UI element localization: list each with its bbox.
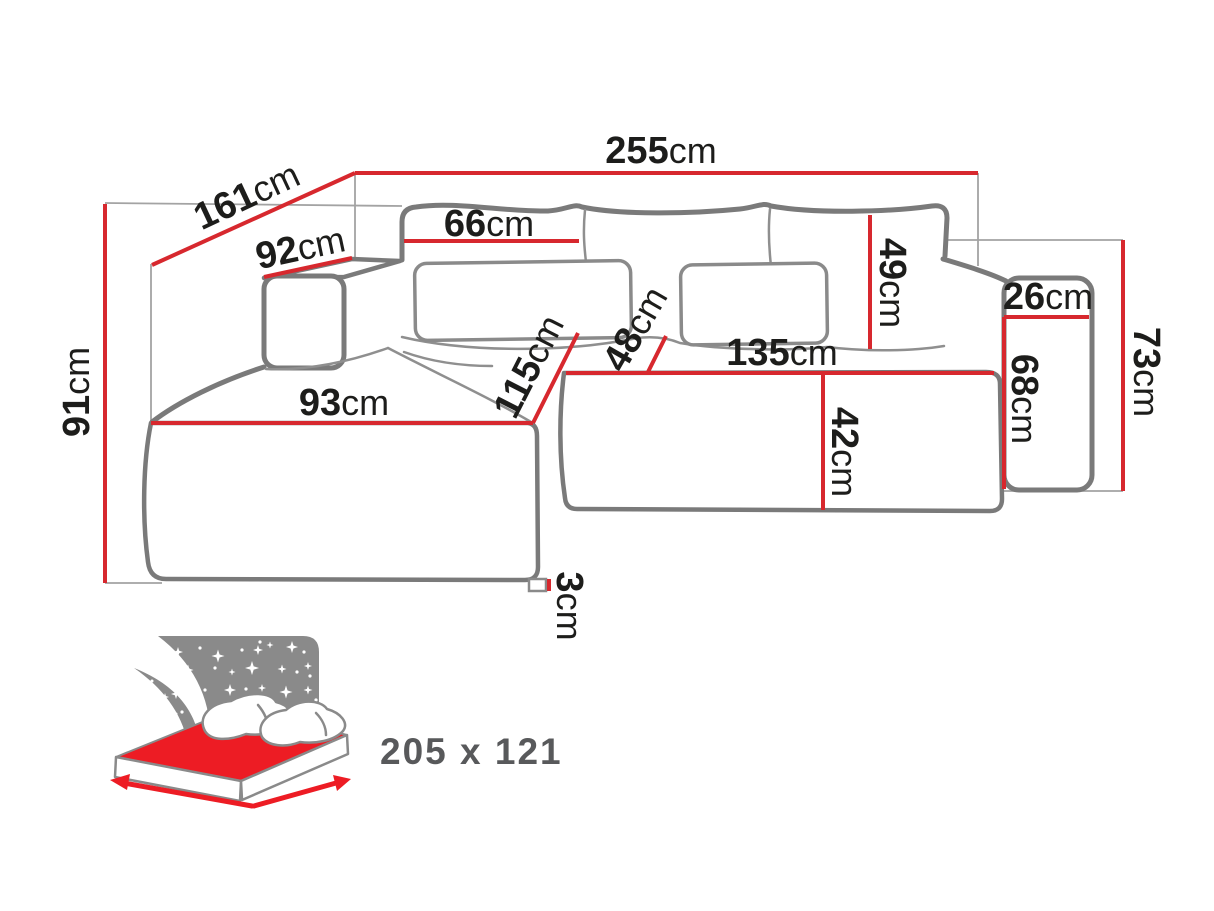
dim-label-66: 66cm (444, 203, 534, 245)
dim-label-73: 73cm (1125, 327, 1167, 417)
front-pillow-left (414, 260, 631, 340)
sofa-dimension-diagram: 255cm 161cm 92cm 66cm 49cm 26cm 68cm 73c… (0, 0, 1214, 911)
dim-label-91: 91cm (56, 347, 98, 437)
dim-label-255: 255cm (605, 130, 716, 172)
dim-label-93: 93cm (299, 382, 389, 424)
sofa-leg (529, 579, 546, 591)
chaise-body (144, 423, 538, 580)
dim-label-42: 42cm (823, 407, 865, 497)
dim-label-135: 135cm (726, 332, 837, 374)
dim-label-26: 26cm (1003, 276, 1093, 318)
main-seat-front-face (560, 372, 1002, 511)
dim-label-68: 68cm (1003, 354, 1045, 444)
dim-label-3: 3cm (548, 571, 590, 640)
dim-label-49: 49cm (871, 238, 913, 328)
left-armrest-front-face (264, 276, 344, 368)
sleeping-area-size-label: 205 x 121 (380, 731, 563, 772)
